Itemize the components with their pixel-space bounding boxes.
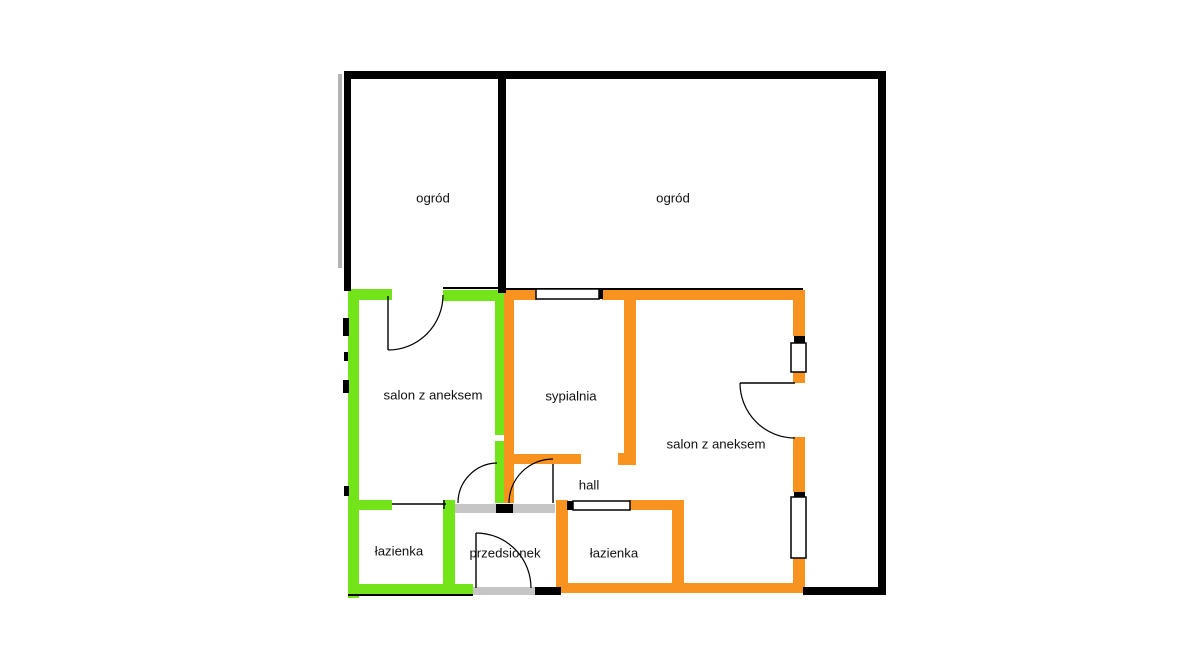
left-wall-tick-3 <box>343 380 349 393</box>
window-bedroom-top <box>536 289 599 299</box>
green-salon-right-wall-lower <box>495 441 505 503</box>
door-arc-garden-green <box>388 295 443 350</box>
door-arc-salon-orange <box>740 383 795 438</box>
green-left-wall <box>348 289 359 598</box>
entry-bottom-threshold <box>473 587 535 595</box>
left-wall-tick-1 <box>343 318 349 336</box>
floorplan-drawing: ogródogródsalon z aneksemsypialniasalon … <box>0 0 1191 667</box>
orange-bathroom-left-wall <box>556 500 568 593</box>
left-wall-tick-2 <box>344 352 348 361</box>
door-arc-green-salon <box>458 463 497 503</box>
label-bathroom-orange: łazienka <box>590 546 639 561</box>
green-top-wall-2 <box>443 290 501 301</box>
orange-bathroom-right-wall <box>672 500 684 590</box>
window-right-upper <box>791 343 806 372</box>
orange-bedroom-left-wall <box>504 291 514 503</box>
outer-bottom-right-wall <box>803 587 886 595</box>
orange-right-wall-3 <box>793 437 805 492</box>
green-bottom-wall <box>348 584 473 594</box>
label-bedroom: sypialnia <box>545 389 597 404</box>
orange-bedroom-right-wall-foot <box>618 453 636 465</box>
green-bathroom-top-wall <box>348 500 392 510</box>
orange-bedroom-right-wall <box>624 291 636 465</box>
green-bathroom-right-wall <box>443 500 455 593</box>
orange-right-wall-1 <box>793 291 805 336</box>
label-garden-left: ogród <box>416 191 450 206</box>
outer-right-wall <box>878 71 886 595</box>
wall-underlay-line-green-top <box>443 287 500 289</box>
label-salon-green: salon z aneksem <box>384 388 483 403</box>
garden-divider-wall <box>498 71 506 293</box>
label-garden-right: ogród <box>656 191 690 206</box>
orange-right-wall-2 <box>793 372 805 383</box>
window-hall <box>573 501 630 510</box>
door-arc-hall <box>509 459 553 503</box>
entry-wall-stub-bottom <box>535 587 561 595</box>
wall-underlay-line-green-bottom <box>348 594 473 596</box>
left-outer-shadow <box>338 74 342 268</box>
window-tick-right-1 <box>794 336 805 343</box>
label-bathroom-green: łazienka <box>375 544 424 559</box>
left-wall-tick-4 <box>344 486 349 496</box>
label-entry: przedsionek <box>469 546 541 561</box>
entry-wall-stub-top <box>496 504 513 513</box>
outer-left-wall <box>344 71 351 291</box>
orange-top-wall-1 <box>504 290 537 300</box>
green-top-wall-1 <box>348 289 392 300</box>
door-arc-entry <box>476 533 531 588</box>
green-salon-right-wall-upper <box>495 291 505 435</box>
label-salon-orange: salon z aneksem <box>667 437 766 452</box>
orange-bedroom-bottom-wall <box>504 454 581 464</box>
window-right-lower <box>791 497 806 558</box>
floorplan-page: ogródogródsalon z aneksemsypialniasalon … <box>0 0 1191 667</box>
label-hall: hall <box>579 478 600 493</box>
outer-top-wall <box>345 71 886 79</box>
